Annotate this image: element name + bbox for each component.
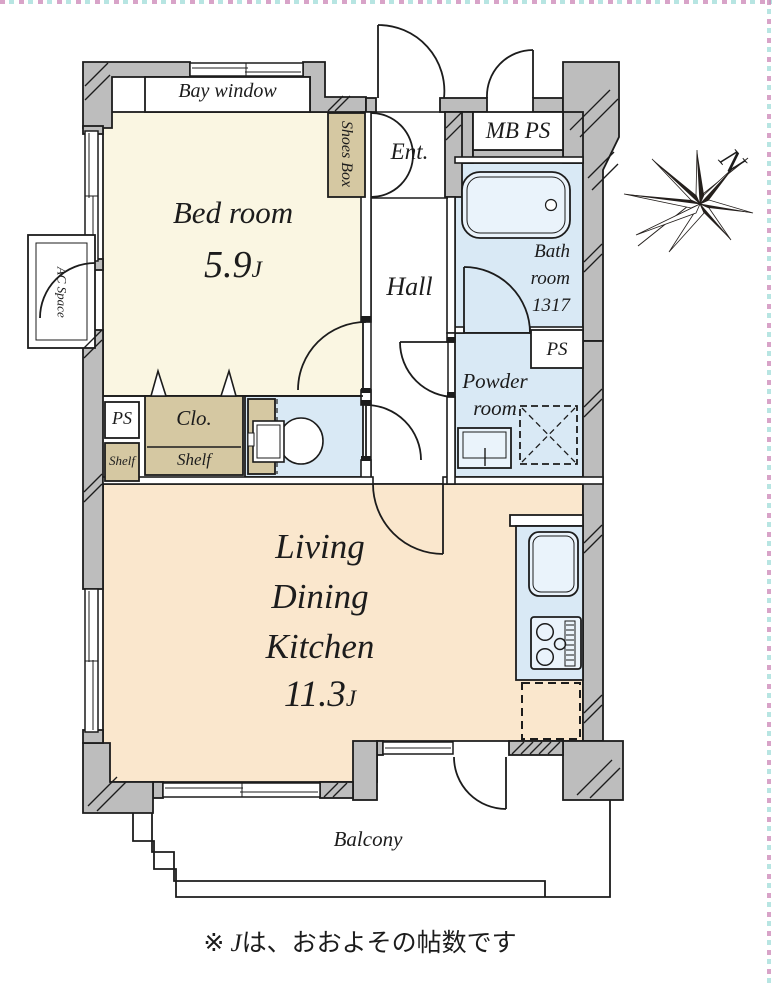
ac-space-label: AC Space [54, 242, 69, 342]
stove [531, 617, 581, 669]
ps-left-label: PS [105, 408, 139, 428]
balcony-label: Balcony [288, 828, 448, 852]
kitchen-sink [529, 532, 578, 596]
mb-ps-label: MB PS [473, 118, 563, 144]
kitchen-counter [510, 515, 583, 526]
bedroom-label: Bed room [103, 196, 363, 231]
entrance-label: Ent. [371, 139, 448, 165]
bathroom-label: Bathroom1317 [455, 238, 570, 319]
ps-bath-label: PS [531, 339, 583, 360]
bedroom-size: 5.9J [103, 244, 363, 287]
shoes-box-label: Shoes Box [337, 104, 355, 204]
bathtub [462, 172, 570, 238]
floorplan: Bay window Bed room 5.9J Shoes Box Ent. … [0, 0, 772, 984]
powder-room-label: Powderroom [450, 368, 540, 422]
bay-window-label: Bay window [145, 80, 310, 102]
closet-shelf-label: Shelf [145, 450, 243, 469]
footnote: ※ Jは、おおよその帖数です [60, 930, 660, 958]
closet-label: Clo. [145, 407, 243, 431]
hall-label: Hall [371, 272, 448, 301]
wash-basin [458, 428, 511, 468]
shelf-small-label: Shelf [103, 454, 141, 469]
toilet [248, 418, 323, 464]
ldk-size: 11.3J [180, 674, 460, 715]
ldk-label: LivingDiningKitchen [180, 522, 460, 672]
